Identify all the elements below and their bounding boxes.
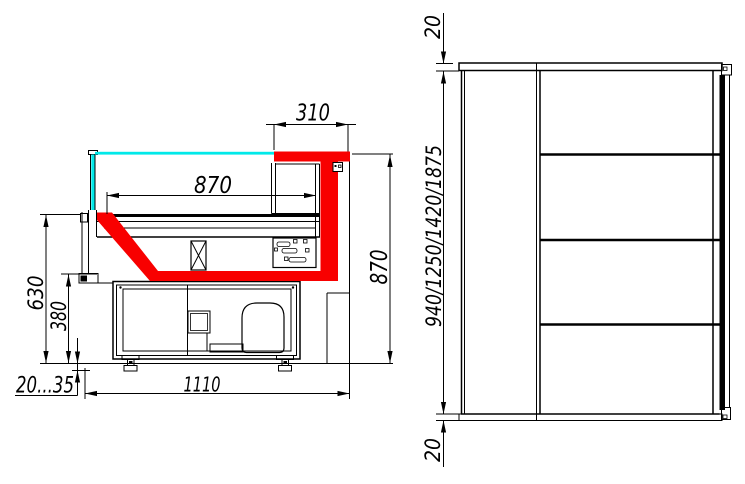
front-view-dimensions: 20 940/1250/1420/1875 20 bbox=[421, 13, 461, 467]
arrowhead bbox=[387, 155, 392, 167]
arrowhead bbox=[387, 351, 392, 363]
rear-duct bbox=[272, 163, 321, 237]
foot-pad bbox=[279, 366, 292, 372]
dim-label-height-variants: 940/1250/1420/1875 bbox=[422, 145, 446, 327]
electric-box-inner bbox=[191, 314, 208, 331]
dim-label-310: 310 bbox=[296, 101, 330, 127]
dim-label-20-top: 20 bbox=[421, 15, 445, 39]
lamp-dot bbox=[335, 165, 337, 167]
dim-base-height: 380 bbox=[47, 274, 97, 364]
dim-label-630: 630 bbox=[24, 276, 48, 311]
grille-slot bbox=[289, 258, 306, 263]
dim-top-panel: 20 bbox=[421, 13, 459, 71]
screw-dot bbox=[292, 286, 294, 288]
arrowhead bbox=[66, 351, 71, 363]
glass-assembly bbox=[89, 151, 275, 211]
vent-grille bbox=[273, 238, 316, 268]
arrowhead bbox=[85, 391, 97, 396]
grille-mark bbox=[304, 240, 308, 244]
foot-nut bbox=[284, 361, 288, 363]
arrowhead bbox=[338, 391, 350, 396]
grille-slot bbox=[282, 249, 297, 254]
grille-mark bbox=[285, 257, 289, 261]
dim-label-20-bottom: 20 bbox=[421, 438, 445, 462]
dim-label-foot-range: 20...35 bbox=[16, 374, 74, 399]
arrowhead bbox=[441, 52, 446, 64]
canopy-panel bbox=[459, 63, 722, 71]
dim-foot-range: 20...35 bbox=[15, 338, 80, 399]
dim-label-380: 380 bbox=[47, 301, 71, 331]
arrowhead bbox=[75, 371, 80, 383]
arrowhead bbox=[75, 352, 80, 364]
electric-box bbox=[188, 311, 210, 333]
dim-base-depth: 1110 bbox=[85, 368, 350, 399]
machine-compartment bbox=[113, 282, 300, 360]
dim-overall-height: 870 bbox=[352, 154, 393, 364]
arrowhead bbox=[43, 215, 48, 227]
front-glass-pane bbox=[91, 155, 94, 211]
dim-back-overhang: 310 bbox=[266, 101, 356, 152]
dim-label-870-height: 870 bbox=[367, 250, 393, 285]
base-panel bbox=[459, 414, 722, 421]
bracket-mark bbox=[723, 415, 727, 419]
grille-slot bbox=[277, 242, 290, 247]
dim-deck-depth: 870 bbox=[107, 173, 316, 214]
lamp-box bbox=[333, 163, 343, 172]
bracket-mark bbox=[724, 67, 728, 71]
compressor bbox=[242, 303, 284, 353]
x-brace-support bbox=[191, 241, 206, 270]
arrowhead bbox=[441, 72, 446, 84]
arrowhead bbox=[336, 122, 348, 127]
dim-bottom-panel: 20 bbox=[421, 414, 461, 467]
technical-drawing-canvas: 310 870 870 630 380 bbox=[0, 0, 745, 484]
arrowhead bbox=[441, 421, 446, 433]
grille-mark bbox=[275, 248, 278, 251]
dim-label-870-deck: 870 bbox=[194, 173, 232, 199]
screw-dot bbox=[119, 286, 121, 288]
front-glass-edge bbox=[720, 75, 726, 410]
worktop-deck bbox=[97, 216, 320, 238]
arrowhead bbox=[43, 351, 48, 363]
arrowhead bbox=[107, 193, 119, 198]
grille-mark bbox=[306, 249, 310, 253]
foot-nut bbox=[129, 361, 133, 363]
foot-pad bbox=[124, 366, 137, 372]
grille-mark bbox=[294, 240, 298, 244]
display-case-drawing: 310 870 870 630 380 bbox=[0, 0, 745, 484]
dim-height-variants: 940/1250/1420/1875 bbox=[422, 72, 446, 415]
arrowhead bbox=[441, 402, 446, 414]
panel-base-fill bbox=[81, 276, 88, 282]
arrowhead bbox=[66, 275, 71, 287]
canopy-end-bracket bbox=[722, 65, 732, 76]
top-glass-pane bbox=[95, 152, 274, 155]
arrowhead bbox=[274, 122, 286, 127]
dim-label-1110: 1110 bbox=[184, 373, 221, 397]
front-view bbox=[459, 63, 732, 421]
arrowhead bbox=[304, 193, 316, 198]
dim-deck-height: 630 bbox=[24, 215, 80, 364]
